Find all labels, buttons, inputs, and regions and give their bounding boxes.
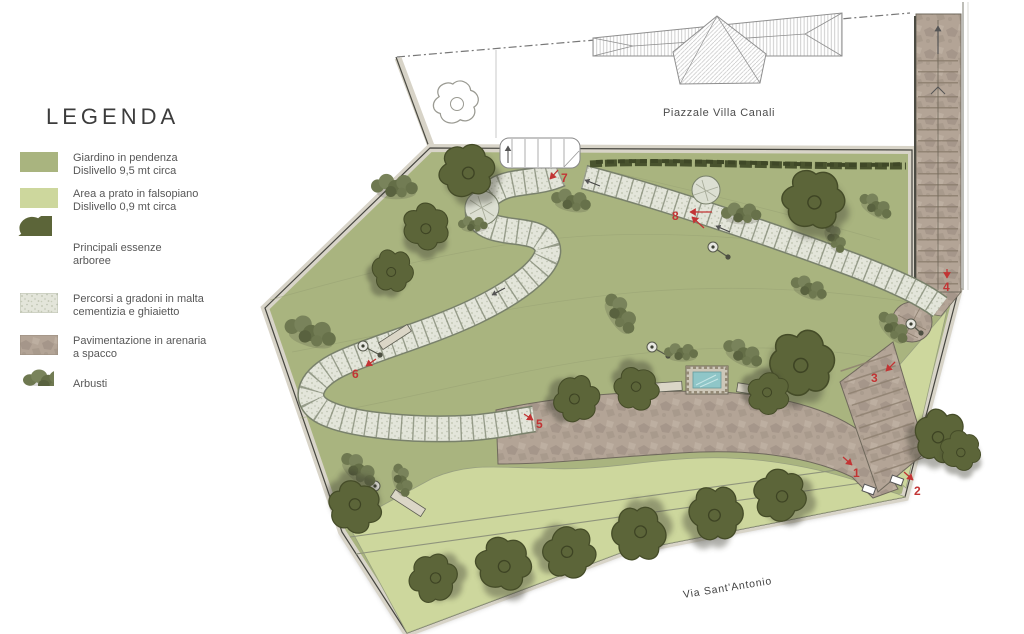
swatch-gravel — [20, 293, 58, 313]
marker-8: 8 — [672, 209, 679, 223]
legend-label: Area a prato in falsopiano — [73, 188, 198, 201]
marker-2: 2 — [914, 484, 921, 498]
marker-6: 6 — [352, 367, 359, 381]
legend-title: LEGENDA — [46, 104, 179, 130]
swatch-sandstone — [20, 335, 58, 355]
entry-stairs — [500, 138, 580, 168]
plaza — [396, 50, 496, 147]
street-label: Via Sant'Antonio — [682, 575, 773, 601]
plan-right-edge — [963, 2, 968, 290]
villa-building — [593, 13, 842, 84]
legend-label: a spacco — [73, 348, 206, 361]
legend: LEGENDA Giardino in pendenza Dislivello … — [0, 0, 270, 634]
marker-4: 4 — [943, 280, 950, 294]
legend-label: Dislivello 0,9 mt circa — [73, 201, 198, 214]
marker-7: 7 — [561, 171, 568, 185]
legend-label: Giardino in pendenza — [73, 152, 178, 165]
tree-icon — [14, 216, 52, 236]
piazzale-label: Piazzale Villa Canali — [663, 107, 775, 119]
swatch-garden-slope — [20, 152, 58, 172]
legend-label: Percorsi a gradoni in malta — [73, 293, 204, 306]
legend-label: Arbusti — [73, 378, 107, 391]
marker-3: 3 — [871, 371, 878, 385]
legend-label: Pavimentazione in arenaria — [73, 335, 206, 348]
sandstone-stairs-long — [915, 14, 961, 292]
legend-label: arboree — [73, 255, 162, 268]
legend-label: cementizia e ghiaietto — [73, 306, 204, 319]
marker-5: 5 — [536, 417, 543, 431]
shrub-icon — [16, 366, 54, 386]
legend-label: Principali essenze — [73, 242, 162, 255]
swatch-lawn — [20, 188, 58, 208]
legend-label: Dislivello 9,5 mt circa — [73, 165, 178, 178]
garden-site-plan: LEGENDA Giardino in pendenza Dislivello … — [0, 0, 1024, 634]
pool — [686, 366, 728, 394]
marker-1: 1 — [853, 466, 860, 480]
